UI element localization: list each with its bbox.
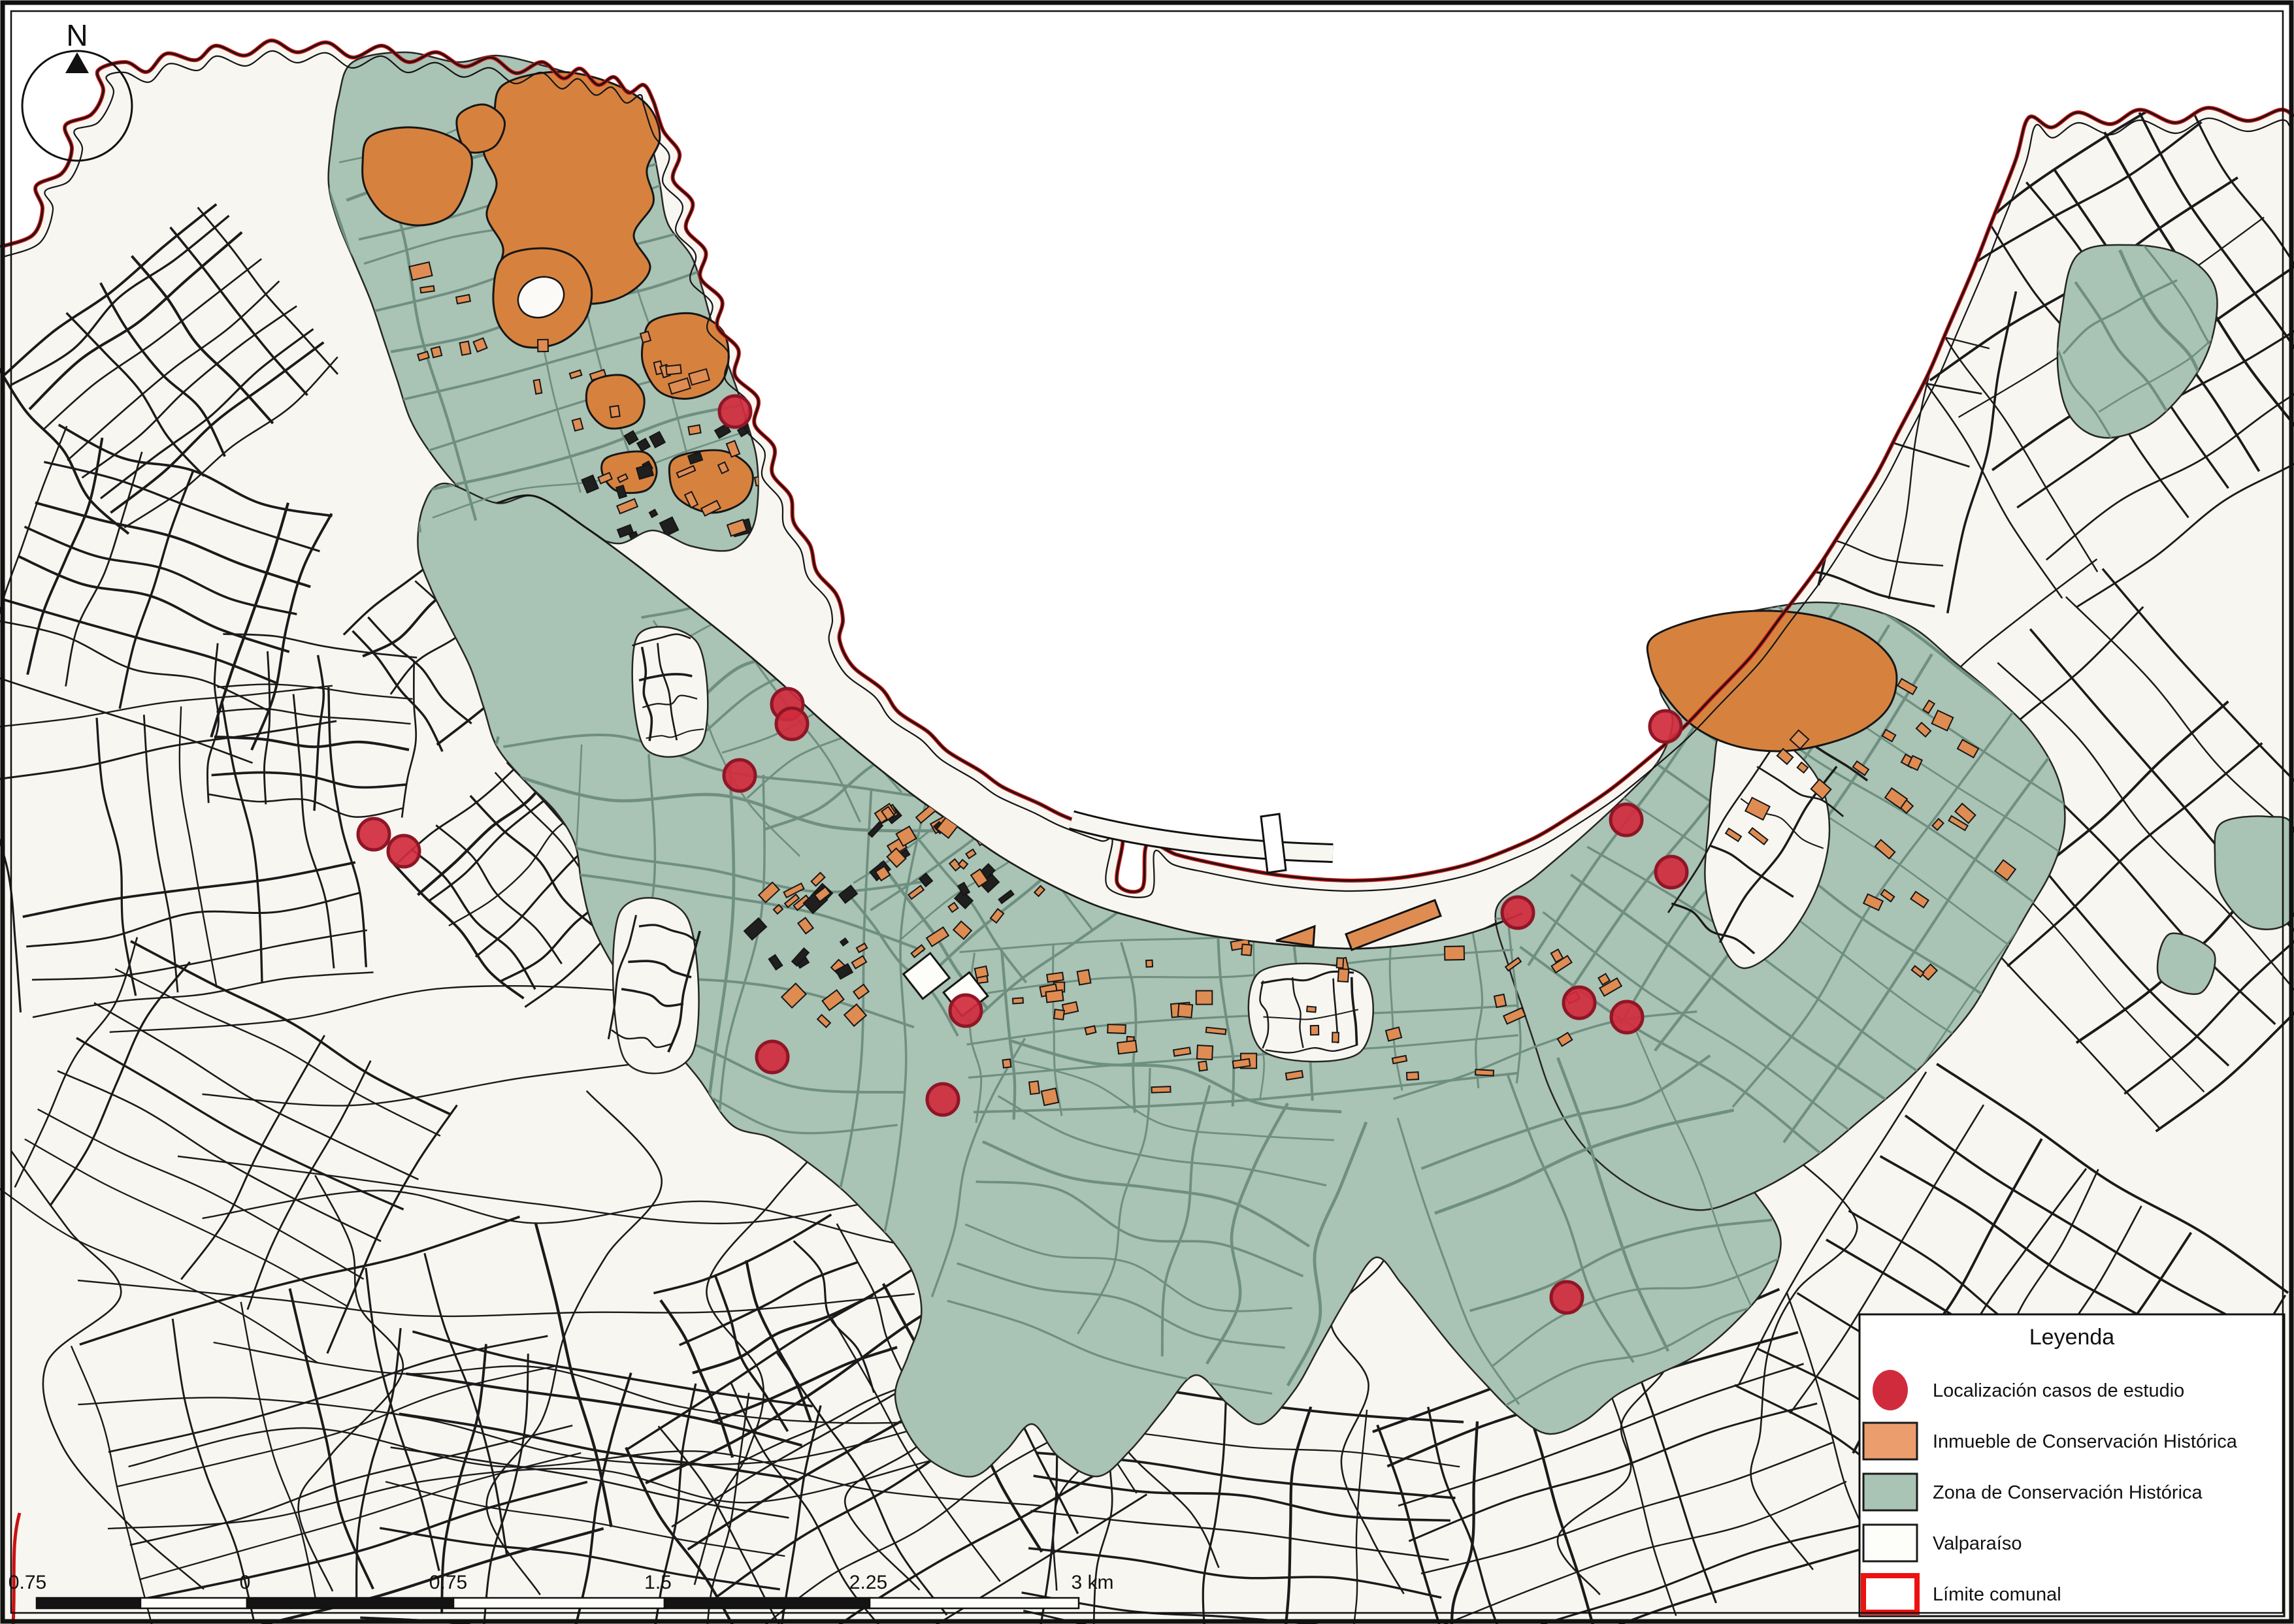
study-location-dot[interactable] <box>1551 1282 1582 1313</box>
scale-segment <box>870 1598 1079 1608</box>
scale-label: 3 km <box>1071 1572 1113 1593</box>
legend: Leyenda Localización casos de estudio In… <box>1860 1314 2284 1616</box>
study-location-dot[interactable] <box>719 396 751 427</box>
scale-segment <box>37 1598 140 1608</box>
valparaiso-legend-swatch <box>1863 1525 1917 1561</box>
study-location-legend-icon <box>1873 1370 1908 1410</box>
study-location-dot[interactable] <box>776 708 808 739</box>
scale-label: 2.25 <box>849 1572 887 1593</box>
study-location-dot[interactable] <box>1611 804 1642 836</box>
limite-legend-swatch <box>1863 1576 1917 1612</box>
scale-segment <box>453 1598 664 1608</box>
scale-segment <box>247 1598 453 1608</box>
study-location-dot[interactable] <box>1656 856 1687 888</box>
scale-segment <box>664 1598 870 1608</box>
legend-item-label: Inmueble de Conservación Histórica <box>1933 1431 2238 1452</box>
scale-label: 0 <box>240 1572 251 1593</box>
scale-label: 0.75 <box>429 1572 467 1593</box>
legend-title: Leyenda <box>2029 1325 2115 1350</box>
scale-label: 0.75 <box>8 1572 46 1593</box>
inmueble-legend-swatch <box>1863 1423 1917 1459</box>
study-location-dot[interactable] <box>1564 987 1595 1018</box>
legend-item-label: Localización casos de estudio <box>1933 1380 2184 1401</box>
study-location-dot[interactable] <box>358 819 389 850</box>
legend-box <box>1860 1314 2284 1616</box>
study-location-dot[interactable] <box>927 1084 959 1115</box>
study-location-dot[interactable] <box>1611 1001 1643 1033</box>
map-canvas: N 0.75 0 0.75 1.5 2.25 3 km Leyenda Loca… <box>0 0 2294 1624</box>
map-page: N 0.75 0 0.75 1.5 2.25 3 km Leyenda Loca… <box>0 0 2294 1624</box>
study-location-dot[interactable] <box>388 836 419 867</box>
zona-legend-swatch <box>1863 1474 1917 1510</box>
scale-label: 1.5 <box>644 1572 672 1593</box>
north-label: N <box>66 18 88 52</box>
legend-item-label: Zona de Conservación Histórica <box>1933 1482 2203 1503</box>
study-location-dot[interactable] <box>757 1041 788 1073</box>
scale-segment <box>140 1598 247 1608</box>
study-location-dot[interactable] <box>1650 711 1681 742</box>
study-location-dot[interactable] <box>724 760 755 791</box>
study-location-dot[interactable] <box>950 995 981 1026</box>
legend-item-label: Límite comunal <box>1933 1584 2061 1605</box>
legend-item-label: Valparaíso <box>1933 1533 2022 1554</box>
study-location-dot[interactable] <box>1502 897 1533 928</box>
